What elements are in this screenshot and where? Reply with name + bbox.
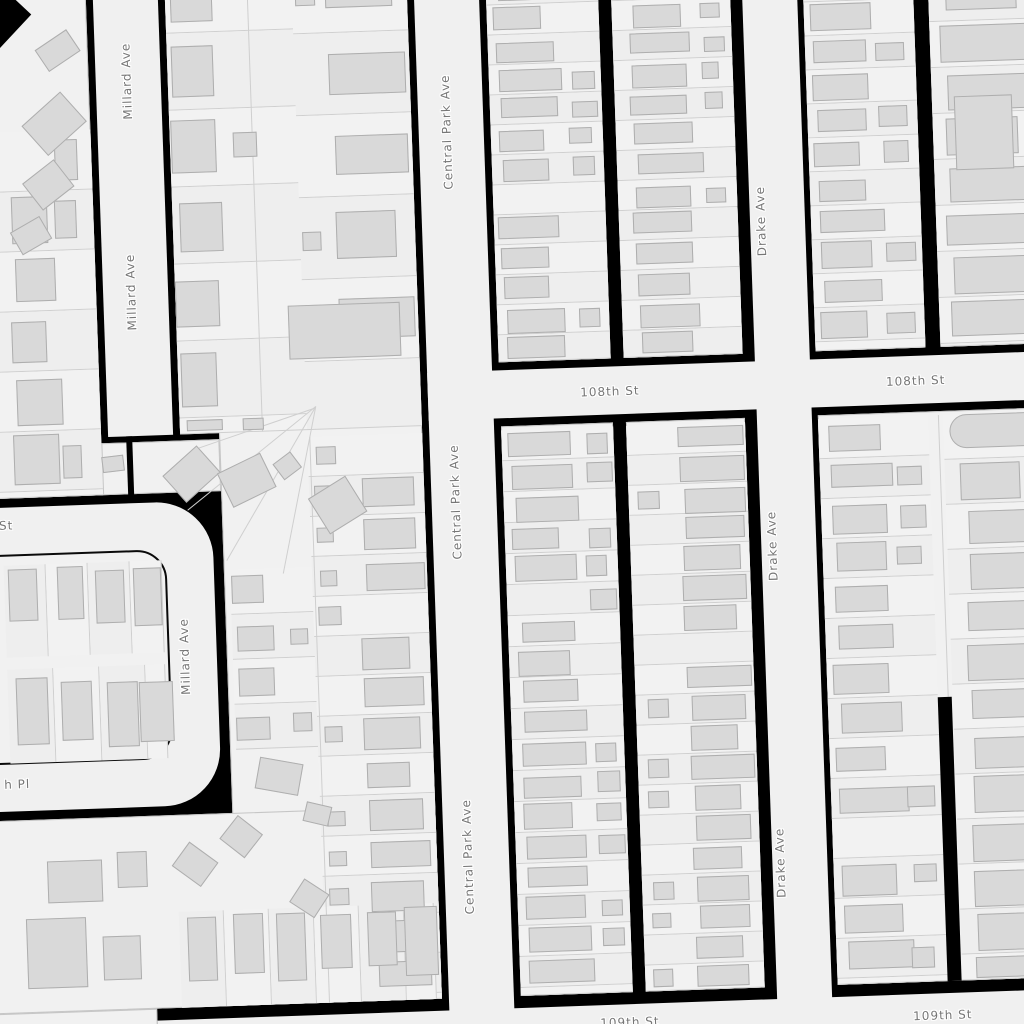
building bbox=[694, 784, 741, 811]
building bbox=[949, 165, 1024, 203]
building bbox=[290, 628, 309, 645]
building bbox=[187, 917, 219, 981]
building bbox=[288, 302, 402, 360]
building bbox=[16, 378, 64, 426]
building bbox=[640, 303, 701, 329]
building bbox=[638, 272, 690, 296]
building bbox=[503, 159, 550, 182]
parcel-lot bbox=[493, 182, 606, 216]
building bbox=[638, 152, 705, 174]
street-label: Millard Ave bbox=[177, 618, 194, 695]
building bbox=[512, 464, 573, 490]
building bbox=[597, 802, 622, 821]
building bbox=[496, 41, 555, 63]
building bbox=[367, 911, 398, 966]
building bbox=[896, 545, 922, 565]
building bbox=[946, 212, 1024, 245]
building bbox=[508, 431, 572, 458]
building bbox=[691, 694, 746, 721]
building bbox=[632, 3, 681, 28]
building bbox=[526, 895, 587, 919]
building bbox=[833, 663, 890, 695]
building bbox=[687, 665, 752, 688]
building bbox=[371, 840, 432, 868]
building bbox=[243, 418, 264, 431]
building bbox=[572, 71, 595, 90]
building bbox=[813, 39, 867, 62]
building bbox=[696, 814, 752, 841]
building bbox=[526, 834, 587, 859]
building bbox=[697, 964, 749, 987]
building bbox=[15, 258, 57, 303]
building bbox=[512, 528, 559, 550]
building bbox=[363, 676, 424, 707]
building bbox=[589, 528, 612, 549]
building bbox=[101, 455, 125, 474]
building bbox=[587, 461, 613, 482]
building bbox=[878, 105, 908, 127]
building bbox=[682, 574, 747, 601]
street-label: 109th St bbox=[913, 1007, 973, 1023]
building bbox=[369, 799, 424, 831]
building bbox=[648, 791, 669, 808]
building bbox=[231, 575, 264, 603]
building bbox=[951, 299, 1024, 337]
street-label: 109th St bbox=[600, 1014, 660, 1024]
building bbox=[237, 625, 274, 651]
building bbox=[684, 604, 737, 631]
building bbox=[699, 3, 720, 18]
building bbox=[968, 599, 1024, 631]
building bbox=[295, 0, 315, 6]
building bbox=[336, 210, 398, 259]
building bbox=[501, 96, 558, 118]
building bbox=[900, 505, 927, 529]
building bbox=[316, 446, 336, 465]
building bbox=[704, 36, 725, 52]
building bbox=[810, 3, 871, 31]
building bbox=[180, 352, 218, 407]
street-label: Drake Ave bbox=[772, 827, 788, 898]
building bbox=[62, 445, 83, 478]
building bbox=[367, 762, 411, 788]
building bbox=[363, 716, 421, 750]
street-label: 108th St bbox=[886, 373, 946, 389]
building bbox=[841, 864, 898, 897]
building bbox=[642, 331, 693, 354]
building bbox=[652, 912, 672, 928]
building bbox=[528, 866, 588, 888]
building bbox=[897, 466, 923, 486]
building bbox=[875, 42, 904, 61]
building bbox=[818, 179, 867, 202]
street-label: 108th St bbox=[580, 383, 640, 399]
street-label: Millard Ave bbox=[118, 43, 135, 120]
building bbox=[523, 802, 573, 830]
building bbox=[838, 624, 894, 650]
building bbox=[633, 211, 692, 233]
building bbox=[501, 247, 550, 269]
building bbox=[976, 955, 1024, 979]
parcel-lot bbox=[633, 632, 753, 666]
building bbox=[186, 419, 223, 431]
building bbox=[586, 555, 608, 577]
building bbox=[886, 312, 916, 334]
map-viewport[interactable]: Millard AveMillard AveMillard AveCentral… bbox=[0, 0, 1024, 1024]
building bbox=[602, 899, 623, 916]
building bbox=[977, 911, 1024, 950]
building bbox=[335, 134, 409, 176]
building bbox=[883, 140, 909, 163]
building bbox=[528, 959, 595, 984]
building bbox=[169, 0, 213, 23]
building bbox=[13, 434, 61, 486]
building bbox=[684, 487, 746, 514]
building bbox=[700, 904, 751, 928]
building bbox=[518, 650, 570, 677]
building bbox=[170, 119, 216, 173]
building bbox=[329, 851, 347, 866]
building bbox=[817, 109, 867, 132]
building bbox=[56, 566, 84, 620]
building bbox=[975, 735, 1024, 769]
building bbox=[94, 570, 126, 624]
building bbox=[572, 101, 599, 118]
building bbox=[653, 881, 675, 900]
building bbox=[633, 121, 693, 144]
building bbox=[524, 776, 582, 799]
building bbox=[302, 231, 322, 251]
building bbox=[912, 947, 936, 968]
building bbox=[514, 554, 578, 582]
building bbox=[499, 68, 562, 92]
building bbox=[569, 127, 592, 143]
building bbox=[844, 903, 904, 934]
building bbox=[117, 851, 148, 888]
building bbox=[683, 544, 741, 571]
building bbox=[701, 61, 719, 79]
street-label: St bbox=[0, 518, 14, 532]
building bbox=[179, 202, 224, 252]
building bbox=[940, 23, 1024, 64]
building bbox=[232, 913, 264, 974]
building bbox=[133, 568, 163, 626]
building bbox=[54, 200, 77, 239]
building bbox=[590, 588, 618, 611]
parcel-lot bbox=[305, 358, 422, 430]
building bbox=[814, 142, 861, 167]
building bbox=[8, 569, 39, 622]
building bbox=[824, 279, 883, 303]
street-label: Millard Ave bbox=[123, 254, 140, 331]
building bbox=[365, 562, 425, 591]
building bbox=[11, 321, 47, 363]
building bbox=[696, 935, 743, 959]
building bbox=[175, 280, 220, 328]
building bbox=[967, 642, 1024, 681]
building bbox=[504, 276, 549, 300]
building bbox=[361, 637, 410, 671]
building bbox=[293, 713, 313, 732]
building bbox=[832, 504, 888, 535]
building bbox=[648, 759, 669, 778]
building bbox=[679, 455, 745, 482]
building bbox=[597, 770, 621, 792]
building bbox=[276, 913, 307, 982]
building bbox=[498, 215, 559, 239]
building bbox=[595, 742, 617, 762]
building bbox=[528, 925, 593, 952]
building bbox=[685, 514, 745, 539]
building bbox=[635, 241, 693, 264]
building bbox=[970, 551, 1024, 590]
street-label: Drake Ave bbox=[753, 186, 769, 257]
building bbox=[974, 869, 1024, 908]
building bbox=[516, 495, 580, 522]
building bbox=[318, 606, 341, 626]
building bbox=[107, 682, 140, 747]
building bbox=[26, 917, 88, 989]
building bbox=[233, 131, 257, 157]
building bbox=[848, 939, 915, 970]
building bbox=[632, 64, 687, 89]
building bbox=[829, 424, 881, 453]
building bbox=[690, 754, 755, 780]
building bbox=[61, 681, 94, 741]
building bbox=[579, 308, 601, 328]
building bbox=[361, 476, 415, 507]
building bbox=[841, 701, 902, 733]
building bbox=[693, 847, 743, 870]
building bbox=[328, 51, 406, 95]
building bbox=[629, 32, 690, 54]
building bbox=[573, 156, 595, 176]
building bbox=[16, 678, 50, 746]
building bbox=[319, 570, 337, 586]
building bbox=[812, 74, 869, 102]
building bbox=[319, 914, 352, 969]
building bbox=[523, 679, 579, 703]
building bbox=[819, 208, 885, 233]
building bbox=[653, 969, 673, 988]
map-canvas: Millard AveMillard AveMillard AveCentral… bbox=[0, 0, 1024, 1024]
building bbox=[630, 95, 687, 116]
building bbox=[239, 667, 276, 697]
building bbox=[47, 860, 103, 904]
building bbox=[236, 717, 272, 742]
building bbox=[949, 411, 1024, 449]
parcel-lot bbox=[832, 815, 943, 859]
building bbox=[499, 129, 544, 152]
building bbox=[103, 935, 143, 980]
building bbox=[492, 6, 541, 31]
building bbox=[507, 308, 565, 334]
building bbox=[886, 242, 916, 262]
building bbox=[598, 834, 626, 855]
building bbox=[329, 888, 350, 906]
building bbox=[677, 425, 744, 448]
building bbox=[821, 240, 873, 269]
building bbox=[507, 335, 566, 359]
building bbox=[521, 620, 575, 642]
building bbox=[953, 255, 1024, 295]
building bbox=[830, 463, 893, 488]
building bbox=[647, 698, 669, 718]
building bbox=[839, 787, 910, 815]
building bbox=[972, 688, 1024, 719]
building bbox=[635, 186, 691, 209]
building bbox=[690, 724, 738, 751]
street-label: Drake Ave bbox=[764, 511, 780, 582]
building bbox=[836, 746, 887, 772]
building bbox=[972, 823, 1024, 862]
building bbox=[913, 864, 936, 883]
building bbox=[522, 741, 588, 766]
building bbox=[139, 681, 174, 742]
building bbox=[637, 491, 660, 510]
building bbox=[324, 726, 342, 743]
building bbox=[170, 45, 214, 98]
building bbox=[954, 94, 1015, 170]
building bbox=[968, 508, 1024, 544]
building bbox=[704, 92, 723, 109]
building bbox=[836, 541, 887, 572]
building bbox=[706, 187, 726, 202]
building bbox=[820, 310, 868, 339]
building bbox=[524, 710, 587, 732]
building bbox=[697, 875, 750, 902]
building bbox=[834, 585, 888, 612]
building bbox=[586, 432, 608, 454]
building bbox=[959, 461, 1021, 501]
building bbox=[602, 927, 625, 945]
building bbox=[907, 785, 935, 807]
building bbox=[404, 906, 440, 976]
street-label: h Pl bbox=[4, 777, 30, 792]
building bbox=[973, 773, 1024, 813]
building bbox=[363, 518, 416, 551]
